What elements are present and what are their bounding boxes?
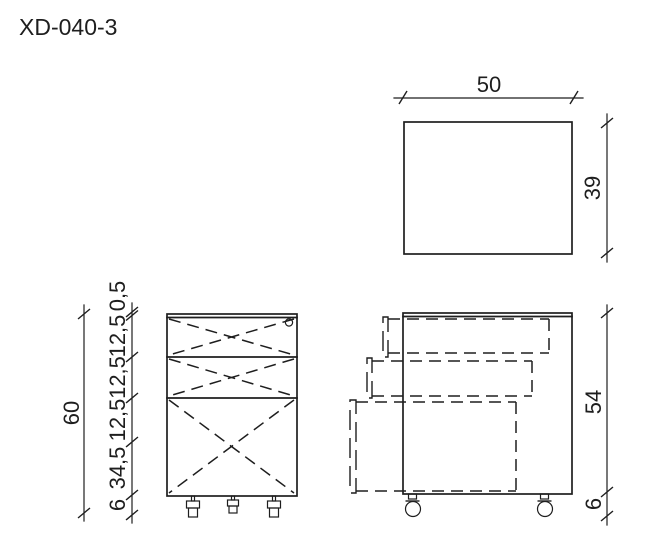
caster-side-left (406, 494, 421, 517)
side-view-casters (406, 494, 553, 517)
caster-side-right (538, 494, 553, 517)
top-view-depth-dimension: 39 (580, 114, 613, 262)
front-view: 60 0,5 12,5 12,5 12,5 34,5 6 (59, 281, 297, 523)
side-view-body-outline (403, 313, 572, 494)
front-view-cabinet-outline (167, 314, 297, 496)
side-view-drawer1-extended (383, 317, 549, 357)
caster-front-left (187, 496, 200, 517)
dim-label-chain-casters: 6 (105, 499, 130, 511)
dim-label-chain-top-panel: 0,5 (105, 281, 130, 312)
side-view-drawer2-extended (367, 358, 532, 398)
dim-label-chain-drawer2: 12,5 (105, 356, 130, 399)
dim-label-body-height: 54 (581, 390, 606, 414)
dim-label-top-width: 50 (477, 72, 501, 97)
dim-label-top-depth: 39 (580, 176, 605, 200)
caster-front-middle (228, 496, 239, 513)
front-view-height-chain-dimension: 0,5 12,5 12,5 12,5 34,5 6 (105, 281, 138, 523)
top-view: 50 39 (394, 72, 613, 262)
front-view-casters (187, 496, 281, 517)
top-view-width-dimension: 50 (394, 72, 583, 104)
product-code-title: XD-040-3 (19, 14, 117, 40)
front-view-drawer-x-marks (169, 319, 294, 493)
side-view-height-dimension: 54 6 (581, 305, 613, 525)
dim-label-caster-height: 6 (581, 498, 606, 510)
caster-front-right (268, 496, 281, 517)
dim-label-chain-drawer3: 12,5 (105, 399, 130, 442)
dim-label-chain-bottom-drawer: 34,5 (105, 447, 130, 490)
side-view: 54 6 (350, 305, 613, 525)
drawing-canvas: XD-040-3 50 39 (0, 0, 653, 553)
front-view-overall-height-dimension: 60 (59, 305, 90, 521)
dim-label-chain-drawer1: 12,5 (105, 315, 130, 358)
technical-drawing-page: XD-040-3 50 39 (0, 0, 653, 553)
dim-label-overall-height: 60 (59, 401, 84, 425)
side-view-drawer3-extended (350, 400, 516, 493)
top-view-outline (404, 122, 572, 254)
